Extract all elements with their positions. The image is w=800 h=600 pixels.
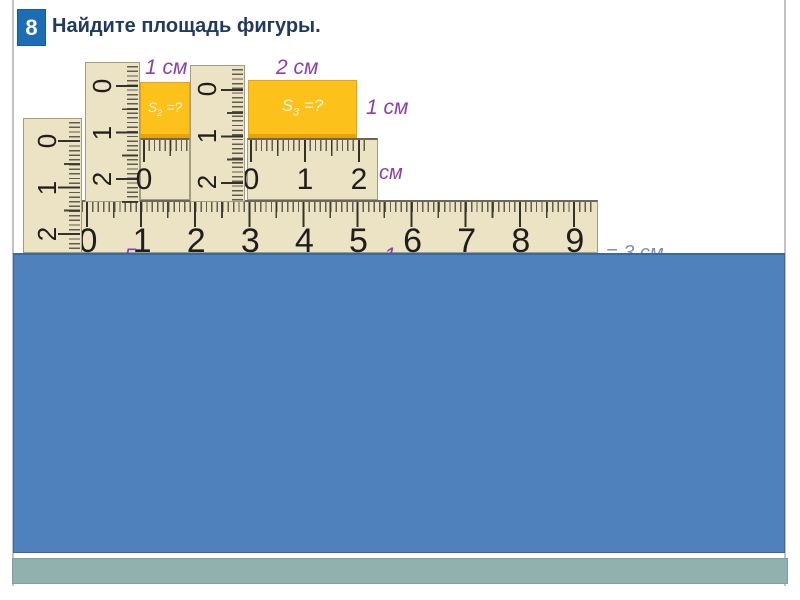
- ruler-numbers: 0123456789: [73, 202, 597, 252]
- footer-teal-bar: [12, 558, 788, 584]
- ruler-number: 1: [34, 180, 60, 194]
- dimension-label-s3-width: 2 см: [276, 56, 318, 80]
- ruler-vertical-s3: 012: [190, 65, 245, 202]
- ruler-number: 1: [297, 165, 314, 195]
- ruler-horizontal-mini-s2: 0: [140, 138, 190, 200]
- s3-label: S3 =?: [282, 96, 324, 118]
- ruler-vertical-left: 012: [23, 118, 82, 253]
- ruler-number: 2: [34, 227, 60, 241]
- ruler-numbers: 012: [24, 119, 81, 252]
- slide: 8 Найдите площадь фигуры. 0123456789 0 0…: [0, 0, 800, 600]
- ruler-vertical-s2: 012: [85, 62, 140, 202]
- unit-label-cm: см: [379, 162, 403, 185]
- s2-label: S2 =?: [148, 99, 182, 118]
- ruler-number: 0: [243, 165, 260, 195]
- ruler-number: 2: [89, 172, 115, 186]
- ruler-number: 2: [194, 175, 220, 189]
- ruler-number: 0: [136, 165, 153, 195]
- ruler-number: 0: [194, 82, 220, 96]
- ruler-number: 1: [89, 125, 115, 139]
- blue-cover-rectangle: [13, 253, 785, 553]
- ruler-number: 0: [89, 79, 115, 93]
- task-number-badge: 8: [17, 9, 46, 46]
- dimension-label-s3-height: 1 см: [366, 96, 408, 120]
- dimension-label-s2-width: 1 см: [145, 56, 187, 80]
- ruler-numbers: 012: [86, 63, 139, 201]
- ruler-number: 2: [351, 165, 368, 195]
- ruler-numbers: 0: [141, 140, 189, 199]
- ruler-number: 0: [34, 134, 60, 148]
- area-rect-s3: S3 =?: [248, 80, 357, 138]
- ruler-horizontal-mini-s3: 012: [247, 138, 378, 200]
- area-square-s2: S2 =?: [140, 82, 190, 138]
- ruler-horizontal-large: 0123456789: [72, 200, 598, 253]
- ruler-numbers: 012: [191, 66, 244, 201]
- page-title: Найдите площадь фигуры.: [52, 15, 321, 38]
- ruler-numbers: 012: [248, 140, 377, 199]
- ruler-number: 1: [194, 128, 220, 142]
